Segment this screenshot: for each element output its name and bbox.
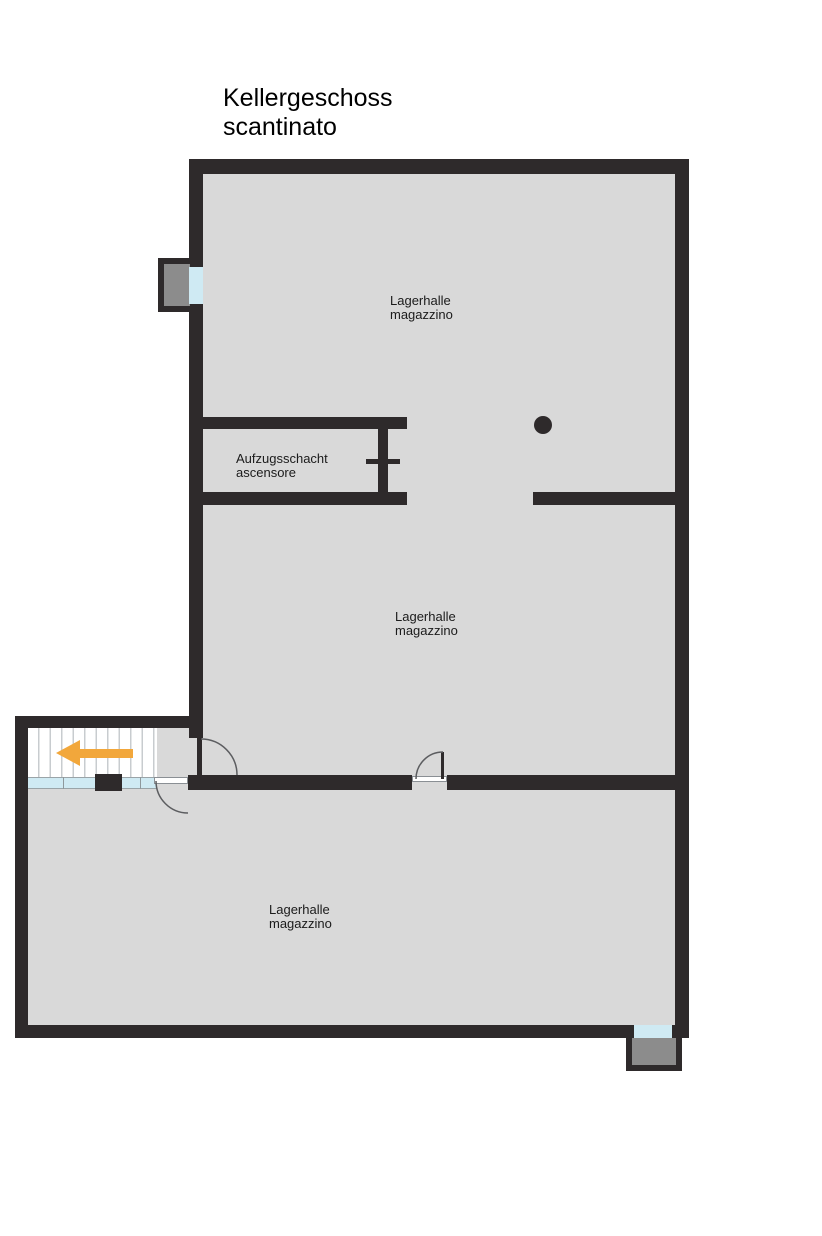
- door-swing-annex: [201, 739, 237, 775]
- floorplan-canvas: Kellergeschoss scantinato Lagerh: [0, 0, 822, 1236]
- room-label-upper: Lagerhalle magazzino: [390, 294, 453, 322]
- room-label-shaft-it: ascensore: [236, 466, 328, 480]
- room-label-middle: Lagerhalle magazzino: [395, 610, 458, 638]
- room-label-shaft: Aufzugsschacht ascensore: [236, 452, 328, 480]
- room-label-upper-de: Lagerhalle: [390, 294, 453, 308]
- room-label-shaft-de: Aufzugsschacht: [236, 452, 328, 466]
- room-label-middle-it: magazzino: [395, 624, 458, 638]
- room-label-lower-it: magazzino: [269, 917, 332, 931]
- room-label-upper-it: magazzino: [390, 308, 453, 322]
- door-swing-stair-landing: [156, 781, 188, 813]
- room-label-middle-de: Lagerhalle: [395, 610, 458, 624]
- room-label-lower-de: Lagerhalle: [269, 903, 332, 917]
- door-swing-middle: [416, 752, 443, 779]
- room-label-lower: Lagerhalle magazzino: [269, 903, 332, 931]
